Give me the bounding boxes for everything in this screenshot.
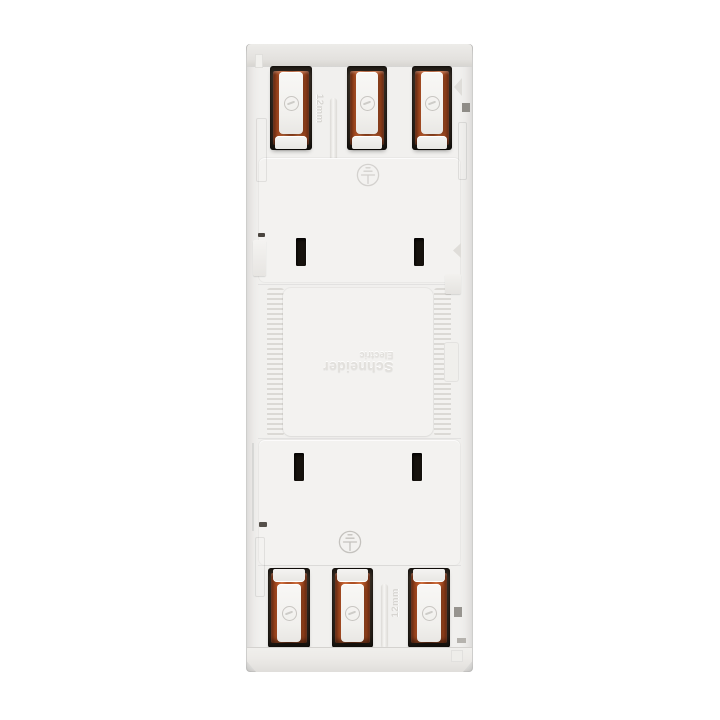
device-top-cap bbox=[247, 44, 472, 67]
rail-notch bbox=[255, 54, 263, 68]
brand-logo: Schneider Electric bbox=[323, 350, 393, 374]
terminal-foot bbox=[413, 569, 445, 582]
top-terminal-1 bbox=[270, 66, 312, 150]
rail-slot-outline bbox=[256, 118, 267, 182]
screwdriver-slot-icon bbox=[282, 606, 297, 621]
brand-name: Schneider bbox=[323, 359, 393, 374]
terminal-lever bbox=[356, 72, 378, 134]
din-device-rear: 12mm Schneider Electric bbox=[246, 44, 473, 672]
terminal-foot bbox=[417, 136, 447, 149]
screwdriver-slot-icon bbox=[425, 96, 440, 111]
mounting-slot-bottom-right bbox=[412, 453, 422, 481]
rail-dark-mark bbox=[258, 233, 265, 237]
rail-notch bbox=[454, 78, 462, 96]
screwdriver-slot-icon bbox=[284, 96, 299, 111]
rail-tab bbox=[444, 342, 459, 382]
top-terminal-3 bbox=[412, 66, 452, 150]
terminal-lever bbox=[417, 584, 441, 642]
mounting-slot-top-right bbox=[414, 238, 424, 266]
rail-tab bbox=[445, 274, 461, 294]
terminal-lever bbox=[277, 584, 301, 642]
terminal-lever bbox=[421, 72, 443, 134]
rail-slot-outline bbox=[255, 537, 265, 597]
protective-earth-icon bbox=[355, 162, 381, 188]
heat-rib-column-left bbox=[267, 288, 284, 436]
terminal-foot bbox=[275, 136, 307, 149]
terminal-lever bbox=[279, 72, 303, 134]
center-panel: Schneider Electric bbox=[283, 288, 433, 436]
bottom-terminal-1 bbox=[268, 568, 310, 648]
rail-dark-mark bbox=[259, 522, 267, 527]
rail-tab bbox=[253, 240, 266, 276]
rail-dark-mark bbox=[457, 638, 466, 643]
rail-tab bbox=[451, 650, 463, 662]
bottom-terminal-2 bbox=[332, 568, 373, 648]
gauge-ridge-bottom bbox=[381, 584, 388, 648]
photo-canvas: 12mm Schneider Electric bbox=[0, 0, 720, 720]
wire-gauge-label-top: 12mm bbox=[314, 94, 325, 123]
screwdriver-slot-icon bbox=[422, 606, 437, 621]
mounting-slot-top-left bbox=[296, 238, 306, 266]
mounting-slot-bottom-left bbox=[294, 453, 304, 481]
rail-dark-mark bbox=[454, 607, 462, 617]
device-bottom-cap bbox=[247, 647, 472, 672]
wire-gauge-label-bottom: 12mm bbox=[390, 588, 401, 617]
rail-dark-mark bbox=[462, 103, 470, 112]
panel-seam bbox=[258, 438, 461, 439]
rail-groove bbox=[252, 443, 254, 531]
bottom-terminal-3 bbox=[408, 568, 450, 648]
screwdriver-slot-icon bbox=[360, 96, 375, 111]
brand-name-sub: Electric bbox=[323, 350, 393, 359]
terminal-foot bbox=[273, 569, 305, 582]
panel-seam bbox=[258, 565, 461, 566]
protective-earth-icon bbox=[337, 529, 363, 555]
top-terminal-2 bbox=[347, 66, 387, 150]
terminal-foot bbox=[352, 136, 382, 149]
terminal-foot bbox=[337, 569, 368, 582]
rail-slot-outline bbox=[458, 122, 467, 180]
terminal-lever bbox=[341, 584, 364, 642]
screwdriver-slot-icon bbox=[345, 606, 360, 621]
panel-seam bbox=[258, 284, 461, 285]
